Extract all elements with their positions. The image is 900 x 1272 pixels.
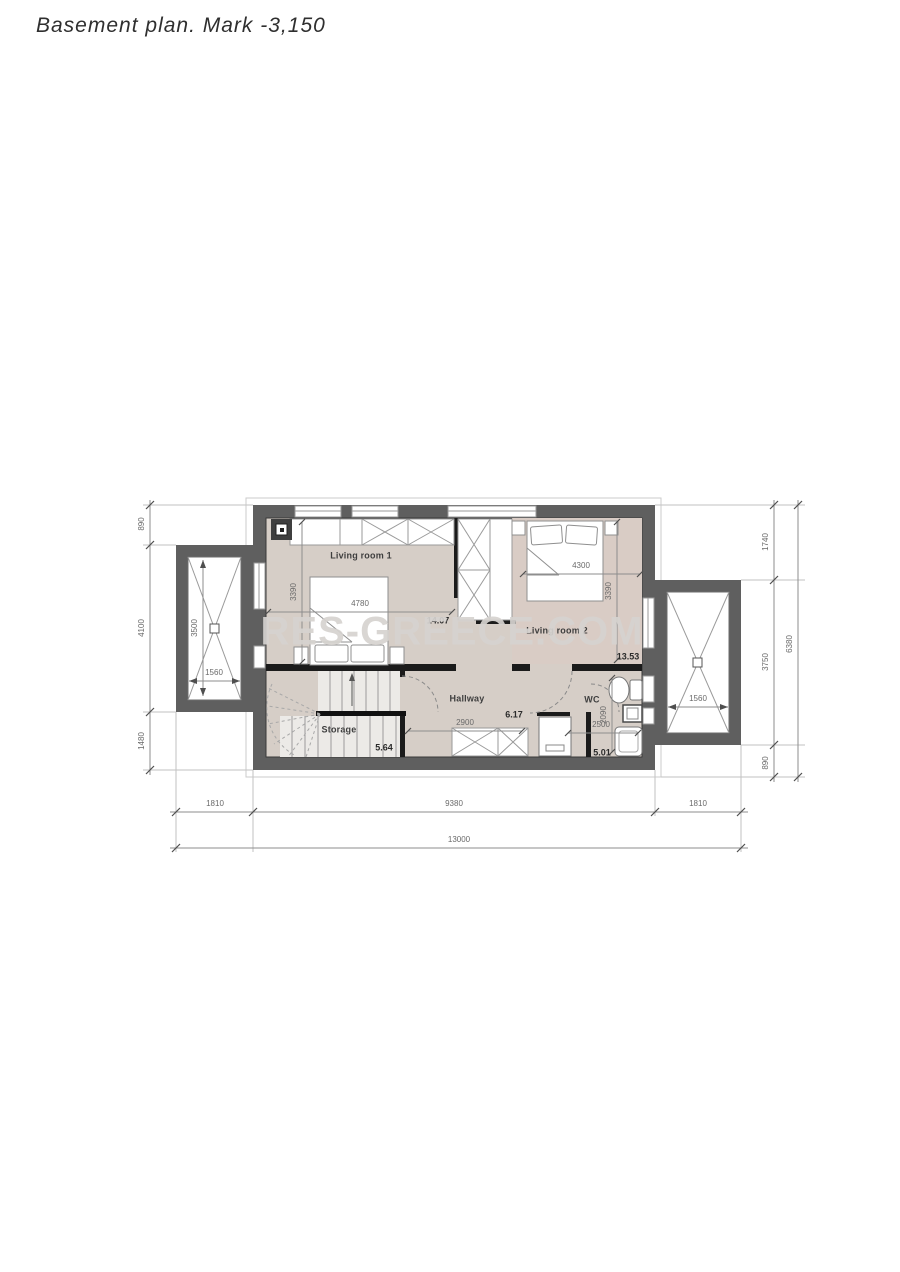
- dim-bottom-right: 1810: [689, 800, 707, 808]
- dim-left-top: 890: [138, 517, 146, 530]
- hallway-width-dim: 2900: [456, 719, 474, 727]
- lightwell-right-width-dim: 1560: [689, 695, 707, 703]
- dim-bottom-middle: 9380: [445, 800, 463, 808]
- dim-bottom-left: 1810: [206, 800, 224, 808]
- drawing-sheet: Basement plan. Mark -3,150: [0, 0, 900, 1272]
- dim-right-middle: 3750: [762, 653, 770, 671]
- living2-width-dim: 4300: [572, 562, 590, 570]
- wc-area: 5.01: [593, 749, 611, 758]
- dim-right-overall: 6380: [786, 635, 794, 653]
- hallway-label: Hallway: [450, 695, 485, 704]
- dim-right-top: 1740: [762, 533, 770, 551]
- living1-width-dim: 4780: [351, 600, 369, 608]
- storage-label: Storage: [322, 726, 357, 735]
- storage-area: 5.64: [375, 744, 393, 753]
- living2-depth-dim: 3390: [605, 582, 613, 600]
- living1-label: Living room 1: [330, 552, 392, 561]
- dim-left-bottom: 1480: [138, 732, 146, 750]
- dim-left-middle: 4100: [138, 619, 146, 637]
- flue-symbol: [271, 519, 292, 540]
- lightwell-left-width-dim: 1560: [205, 669, 223, 677]
- dim-bottom-overall: 13000: [448, 836, 470, 844]
- wc-label: WC: [584, 696, 599, 705]
- watermark: RES-GREECE.COM: [261, 610, 644, 655]
- hallway-area: 6.17: [505, 711, 523, 720]
- bed-living2: [512, 521, 618, 601]
- dim-right-bottom: 890: [762, 756, 770, 769]
- lightwell-left-depth-dim: 3500: [191, 619, 199, 637]
- wc-depth-dim: 2090: [600, 706, 608, 724]
- living1-depth-dim: 3390: [290, 583, 298, 601]
